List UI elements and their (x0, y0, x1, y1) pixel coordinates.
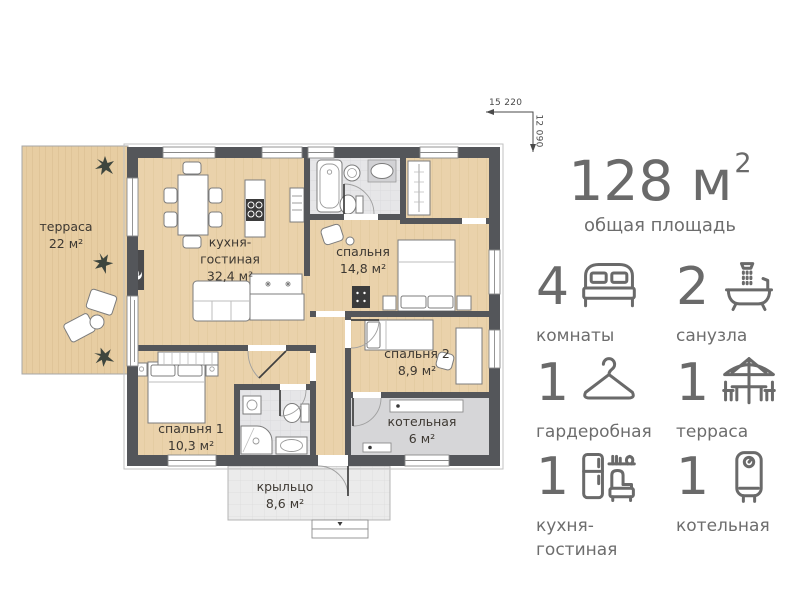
room-label-bedroom2: спальня 2 8,9 м² (384, 346, 450, 380)
kitchen-living-icon (579, 447, 639, 507)
dimension-height-label: 12 090 (534, 114, 544, 147)
stat-boiler: 1 котельная (676, 446, 779, 539)
bath-icon (719, 257, 779, 317)
oval-sink (368, 160, 396, 182)
tv-cabinet (352, 286, 370, 308)
bed-icon (579, 257, 639, 317)
room-label-terrace: терраса 22 м² (39, 219, 92, 253)
bathtub (317, 160, 342, 212)
kitchen-island (245, 180, 265, 237)
cooktop (246, 199, 264, 221)
stat-terrace-label: терраса (676, 421, 779, 445)
stat-kitchen-living-count: 1 (536, 451, 569, 503)
stat-boiler-label: котельная (676, 515, 779, 539)
stat-terrace: 1 терраса (676, 352, 779, 445)
nightstand (457, 296, 471, 310)
room-label-bedroom1: спальня 1 10,3 м² (158, 421, 224, 455)
stat-kitchen-living: 1 кухня- гостиная (536, 446, 639, 563)
dimension-width-label: 15 220 (489, 98, 522, 108)
room-label-porch: крыльцо 8,6 м² (257, 479, 314, 513)
porch-step-2 (312, 529, 368, 538)
nightstand (383, 296, 396, 310)
vanity-sink (276, 437, 307, 454)
stat-boiler-count: 1 (676, 451, 709, 503)
total-area: 128 м2 общая площадь (530, 150, 790, 236)
boiler-icon (719, 447, 779, 507)
floor-plan: терраса 22 м² кухня- гостиная 32,4 м² сп… (0, 0, 560, 600)
room-label-kitchen-living: кухня- гостиная 32,4 м² (200, 235, 260, 286)
shower (241, 426, 272, 454)
stat-terrace-count: 1 (676, 357, 709, 409)
wardrobe-closet (408, 161, 430, 215)
total-area-value: 128 м2 (530, 150, 790, 209)
washing-machine (243, 396, 261, 414)
room-label-bedroom: спальня 14,8 м² (336, 244, 390, 278)
parasol-table-icon (719, 353, 779, 413)
side-table (90, 315, 104, 329)
stat-wardrobe-label: гардеробная (536, 421, 652, 445)
stat-kitchen-living-label: кухня- гостиная (536, 515, 639, 563)
summary-panel: 128 м2 общая площадь 4 комнаты 2 (520, 0, 800, 600)
stat-rooms-label: комнаты (536, 325, 639, 349)
stat-wardrobe-count: 1 (536, 357, 569, 409)
stat-bathrooms-count: 2 (676, 261, 709, 313)
round-sink (344, 165, 360, 181)
hanger-icon (579, 353, 639, 413)
room-label-boiler: котельная 6 м² (388, 414, 457, 448)
total-area-caption: общая площадь (530, 215, 790, 236)
oven-column (290, 188, 304, 222)
stat-rooms-count: 4 (536, 261, 569, 313)
stat-wardrobe: 1 гардеробная (536, 352, 652, 445)
sofa (193, 281, 250, 321)
toilet-2 (284, 404, 310, 423)
stat-bathrooms: 2 санузла (676, 256, 779, 349)
stat-rooms: 4 комнаты (536, 256, 639, 349)
stat-bathrooms-label: санузла (676, 325, 779, 349)
closet (158, 352, 218, 365)
floor-plan-page: терраса 22 м² кухня- гостиная 32,4 м² сп… (0, 0, 800, 600)
